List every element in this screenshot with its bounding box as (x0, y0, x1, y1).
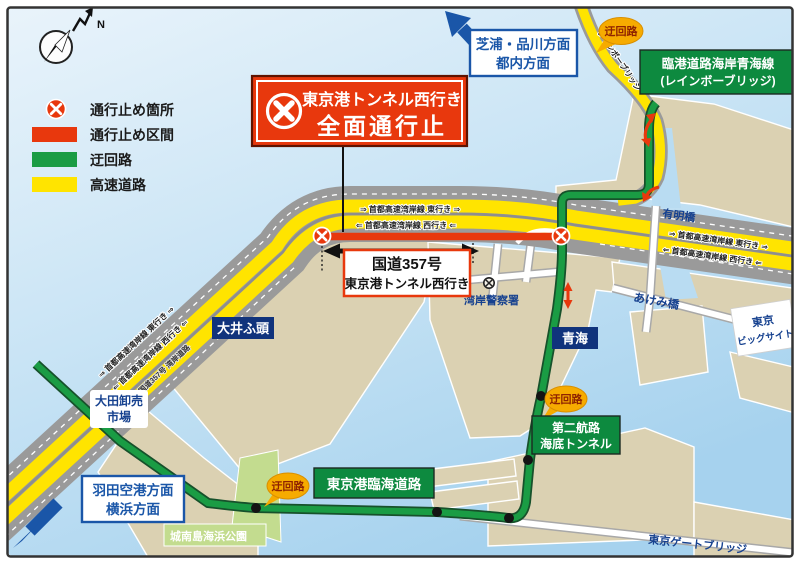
aomi-text: 青海 (562, 331, 588, 346)
oi-wharf-text: 大井ふ頭 (217, 321, 270, 336)
legend-label-closure-section: 通行止め区間 (90, 127, 174, 143)
aomi-label: 青海 (552, 327, 598, 349)
route357-text-2: 東京港トンネル西行き (345, 276, 470, 291)
hwy-label-west-center: ⇐ 首都高速湾岸線 西行き ⇐ (356, 220, 456, 230)
sign-rinkai-text-2: (レインボーブリッジ) (660, 73, 775, 88)
oi-wharf-label: 大井ふ頭 (212, 317, 274, 339)
banner-text-1: 東京港トンネル西行き (302, 90, 462, 109)
legend-closure-point-icon (47, 100, 66, 119)
sign-rinkai-road: 臨港道路海岸青海線 (レインボーブリッジ) (640, 50, 796, 94)
legend-swatch-detour (32, 152, 77, 167)
route357-box: 国道357号 東京港トンネル西行き (344, 250, 470, 296)
direction-north-text-2: 都内方面 (495, 55, 550, 71)
banner-text-2: 全面通行止 (316, 113, 447, 139)
ota-market-text-1: 大田卸売 (95, 393, 143, 408)
sign-tokyo-rinkai-text: 東京港臨海道路 (327, 476, 422, 492)
sign-daini-text-1: 第二航路 (552, 420, 601, 435)
land-island-diamond (630, 306, 708, 385)
compass-n-label: N (97, 19, 105, 31)
jonanjima-label: 城南島海浜公園 (170, 529, 247, 543)
legend-label-closure-point: 通行止め箇所 (90, 102, 174, 118)
police-station-icon (484, 278, 494, 288)
map-canvas: 湾岸警察署 ⇒ 首都高速湾岸線 東行き ⇒ ⇐ 首都高速湾岸線 西行き ⇐ ⇒ … (0, 0, 800, 564)
sign-daini-text-2: 海底トンネル (540, 436, 612, 451)
closure-point-icon (553, 228, 570, 245)
detour-badge-text: 迂回路 (272, 479, 306, 493)
route357-text-1: 国道357号 (372, 255, 442, 273)
sign-daini-tunnel: 第二航路 海底トンネル (532, 416, 620, 454)
direction-southwest-text-1: 羽田空港方面 (93, 482, 174, 498)
big-sight-label: 東京 ビッグサイト (731, 299, 798, 356)
direction-southwest-text-2: 横浜方面 (106, 501, 160, 517)
legend-label-detour: 迂回路 (90, 152, 133, 168)
legend-swatch-expressway (32, 177, 77, 192)
detour-badge-text: 迂回路 (550, 392, 584, 406)
sign-rinkai-text-1: 臨港道路海岸青海線 (662, 56, 775, 71)
legend-swatch-closure-section (32, 127, 77, 142)
ota-market-label: 大田卸売 市場 (90, 390, 148, 428)
closure-point-icon (314, 228, 331, 245)
legend-label-expressway: 高速道路 (90, 177, 147, 193)
police-label: 湾岸警察署 (464, 293, 519, 307)
direction-north-text-1: 芝浦・品川方面 (476, 36, 571, 52)
ota-market-text-2: 市場 (107, 409, 131, 424)
detour-badge-text: 迂回路 (605, 24, 639, 38)
road-closure-map: 湾岸警察署 ⇒ 首都高速湾岸線 東行き ⇒ ⇐ 首都高速湾岸線 西行き ⇐ ⇒ … (0, 0, 800, 564)
hwy-label-east-center: ⇒ 首都高速湾岸線 東行き ⇒ (360, 204, 460, 214)
sign-tokyo-rinkai-road: 東京港臨海道路 (314, 468, 434, 498)
closure-banner: 東京港トンネル西行き 全面通行止 (252, 76, 467, 146)
